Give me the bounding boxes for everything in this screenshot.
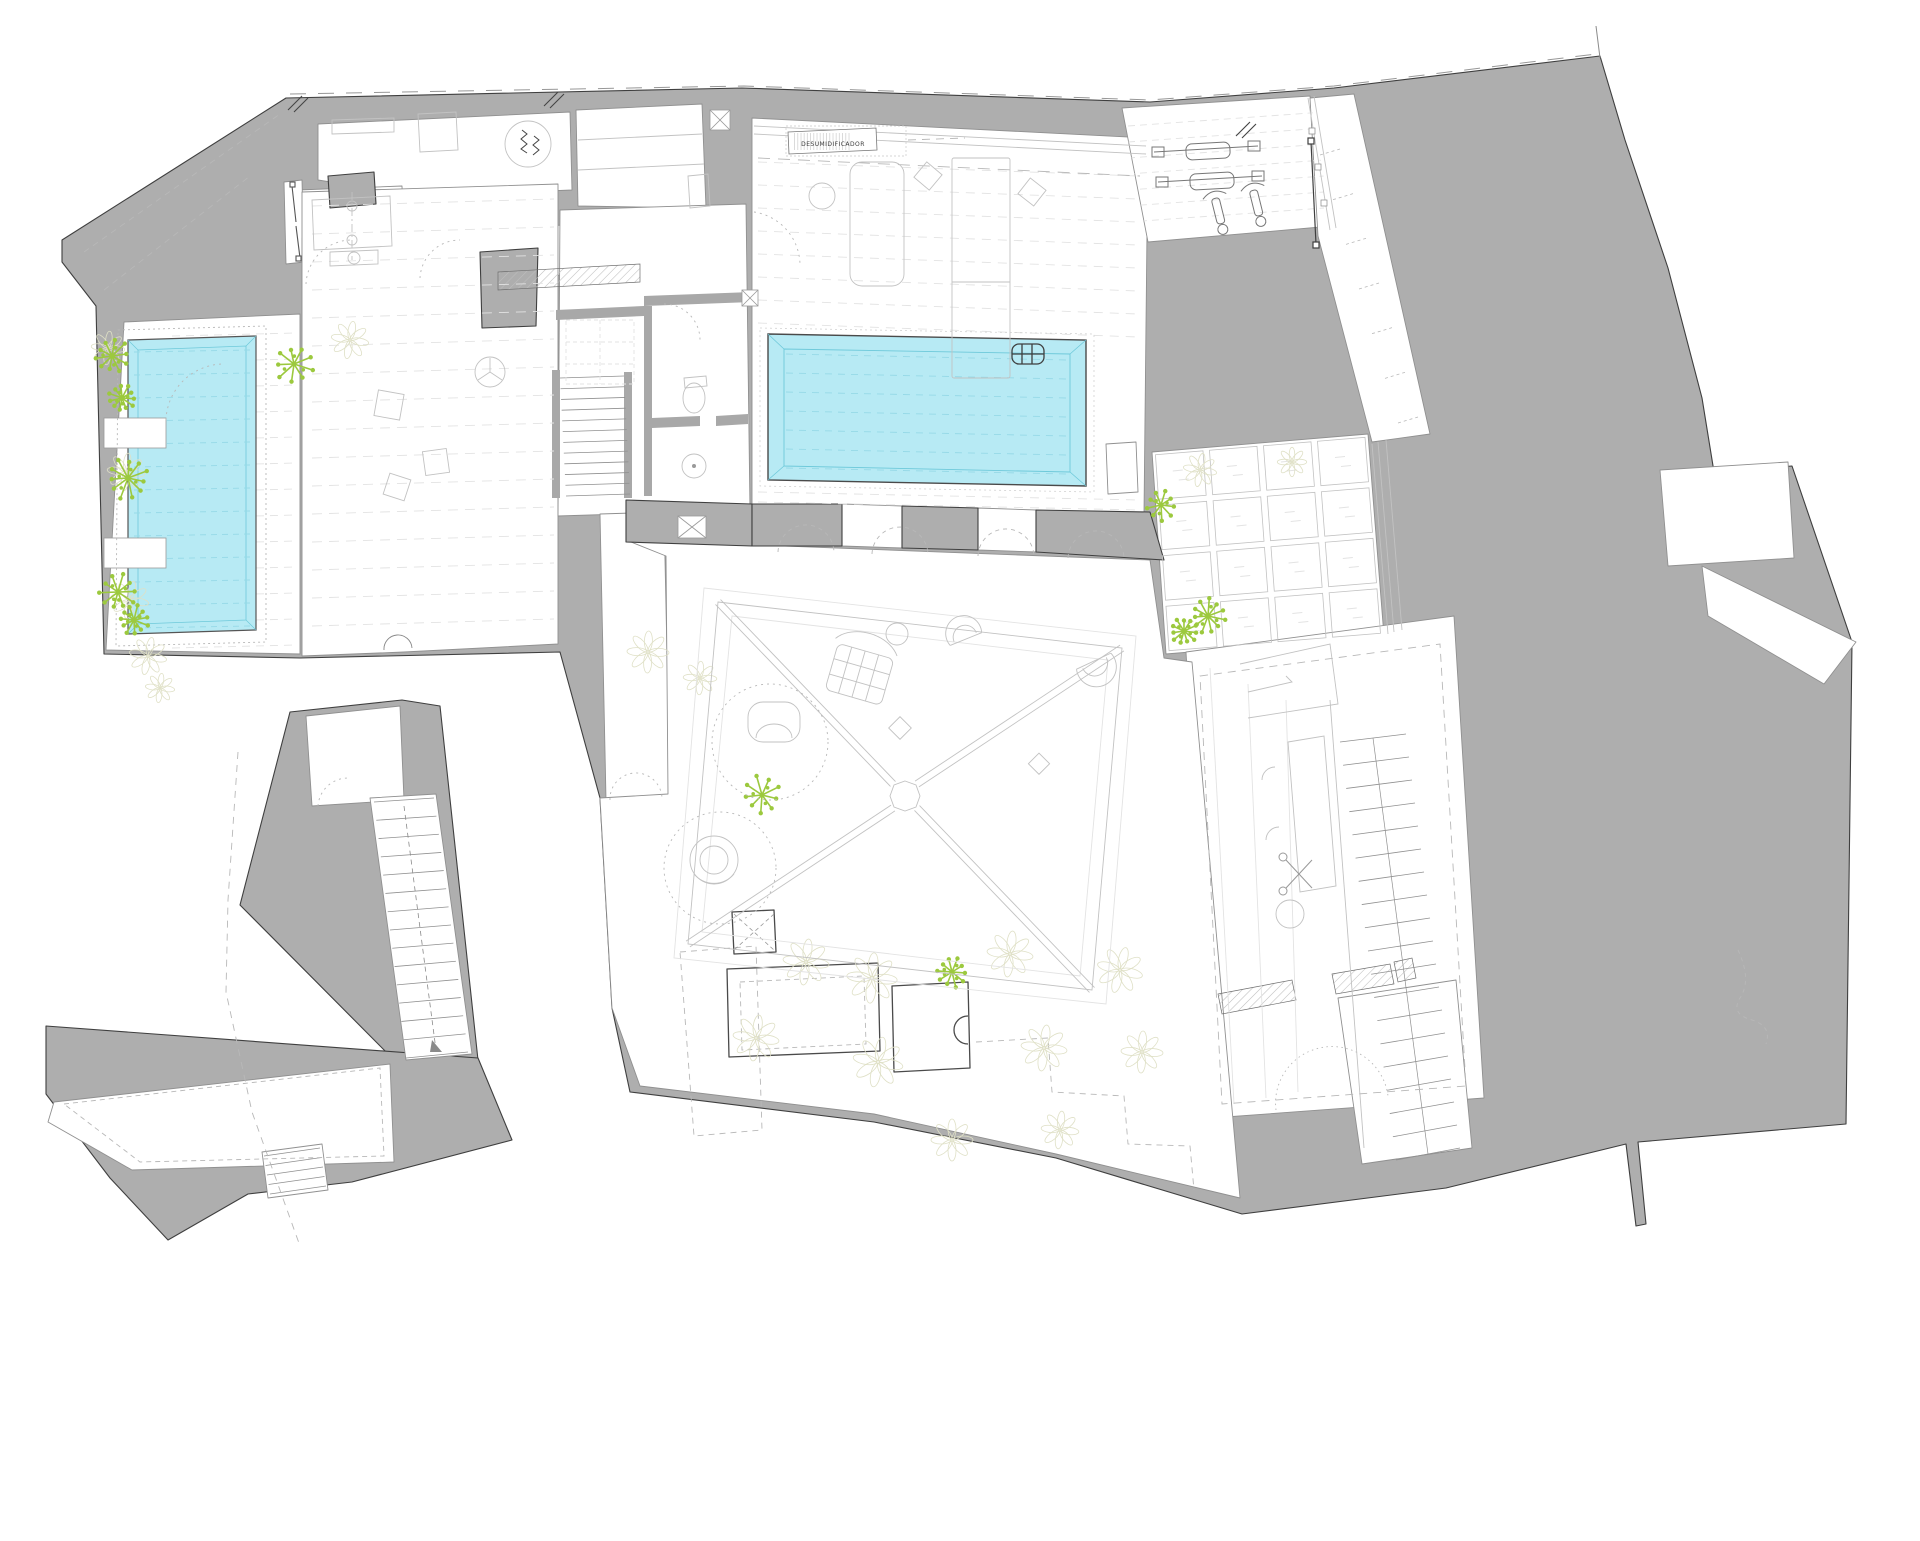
leaf-dot bbox=[94, 356, 98, 360]
leaf-dot bbox=[131, 600, 135, 604]
leaf-dot bbox=[121, 604, 125, 608]
leaf-dot bbox=[112, 597, 116, 601]
leaf-dot bbox=[145, 615, 149, 619]
leaf-dot bbox=[1145, 506, 1149, 510]
leaf-dot bbox=[963, 971, 967, 975]
leaf-dot bbox=[123, 341, 127, 345]
leaf-dot bbox=[1163, 489, 1167, 493]
leaf-dot bbox=[138, 488, 142, 492]
leaf-dot bbox=[1207, 596, 1211, 600]
leaf-dot bbox=[1215, 619, 1219, 623]
leaf-dot bbox=[1171, 624, 1175, 628]
leaf-dot bbox=[122, 610, 126, 614]
leaf-dot bbox=[146, 623, 150, 627]
trunk-dot bbox=[116, 590, 121, 595]
foliage-plant-icon bbox=[145, 673, 175, 703]
leaf-dot bbox=[113, 387, 117, 391]
deck-niche bbox=[1106, 442, 1138, 494]
leaf-dot bbox=[1188, 619, 1192, 623]
petal bbox=[145, 683, 160, 690]
pool-bridge-slab bbox=[104, 418, 166, 448]
leaf-dot bbox=[955, 977, 959, 981]
leaf-dot bbox=[132, 631, 136, 635]
leaf-dot bbox=[124, 631, 128, 635]
leaf-dot bbox=[955, 956, 959, 960]
leaf-dot bbox=[751, 792, 755, 796]
leaf-dot bbox=[117, 369, 121, 373]
leaf-dot bbox=[289, 379, 293, 383]
leaf-dot bbox=[102, 600, 106, 604]
leaf-dot bbox=[1178, 640, 1182, 644]
leaf-dot bbox=[112, 486, 116, 490]
leaf-dot bbox=[145, 469, 149, 473]
leaf-dot bbox=[130, 495, 134, 499]
leaf-dot bbox=[116, 458, 120, 462]
central-hall bbox=[558, 204, 750, 516]
leaf-dot bbox=[283, 367, 287, 371]
leaf-dot bbox=[300, 375, 304, 379]
leaf-dot bbox=[110, 477, 114, 481]
floor-plan-sheet: DESUMIDIFICADOR bbox=[0, 0, 1920, 1541]
leaf-dot bbox=[1168, 497, 1172, 501]
petal bbox=[948, 1141, 956, 1161]
neighbor-notch-1 bbox=[1660, 462, 1794, 566]
leaf-dot bbox=[1185, 639, 1189, 643]
leaf-dot bbox=[776, 785, 780, 789]
leaf-dot bbox=[103, 341, 107, 345]
leaf-dot bbox=[1169, 513, 1173, 517]
leaf-dot bbox=[1172, 504, 1176, 508]
leaf-dot bbox=[289, 348, 293, 352]
main-pool bbox=[760, 328, 1094, 492]
leaf-dot bbox=[961, 979, 965, 983]
wall-chunk bbox=[752, 504, 842, 546]
trunk-dot bbox=[292, 362, 297, 367]
leaf-dot bbox=[137, 461, 141, 465]
leaf-dot bbox=[124, 406, 128, 410]
branch bbox=[118, 591, 135, 592]
leaf-dot bbox=[754, 774, 758, 778]
leaf-dot bbox=[1154, 499, 1158, 503]
leaf-dot bbox=[1200, 630, 1204, 634]
leaf-dot bbox=[308, 355, 312, 359]
leaf-dot bbox=[132, 396, 136, 400]
leaf-dot bbox=[124, 361, 128, 365]
leaf-dot bbox=[311, 368, 315, 372]
leaf-dot bbox=[103, 581, 107, 585]
leaf-dot bbox=[1221, 608, 1225, 612]
leaf-dot bbox=[759, 811, 763, 815]
leaf-dot bbox=[292, 354, 296, 358]
leaf-dot bbox=[301, 368, 305, 372]
leaf-dot bbox=[277, 375, 281, 379]
leaf-dot bbox=[1193, 615, 1197, 619]
leaf-dot bbox=[107, 391, 111, 395]
leaf-dot bbox=[955, 964, 959, 968]
petal bbox=[931, 1136, 951, 1144]
leaf-dot bbox=[101, 353, 105, 357]
trunk-dot bbox=[132, 618, 137, 623]
trunk-dot bbox=[760, 793, 765, 798]
leaf-dot bbox=[127, 581, 131, 585]
floor-plan: DESUMIDIFICADOR bbox=[0, 0, 1920, 1541]
leaf-dot bbox=[108, 367, 112, 371]
stairwing-upper-room bbox=[306, 706, 404, 806]
petal bbox=[159, 677, 173, 690]
leaf-dot bbox=[126, 384, 130, 388]
leaf-dot bbox=[117, 360, 121, 364]
leaf-dot bbox=[112, 363, 116, 367]
leaf-dot bbox=[114, 346, 118, 350]
leaf-dot bbox=[118, 407, 122, 411]
leaf-dot bbox=[278, 351, 282, 355]
pool-bridge-slab bbox=[104, 538, 166, 568]
leaf-dot bbox=[130, 404, 134, 408]
leaf-dot bbox=[1172, 638, 1176, 642]
leaf-dot bbox=[1151, 513, 1155, 517]
leaf-dot bbox=[1223, 618, 1227, 622]
wall-chunk bbox=[1036, 510, 1164, 560]
leaf-dot bbox=[954, 985, 958, 989]
trunk-dot bbox=[1182, 629, 1187, 634]
leaf-dot bbox=[764, 802, 768, 806]
wall-chunk bbox=[902, 506, 978, 550]
leaf-dot bbox=[1160, 519, 1164, 523]
leaf-dot bbox=[945, 982, 949, 986]
leaf-dot bbox=[1165, 501, 1169, 505]
trunk-dot bbox=[126, 476, 131, 481]
leaf-dot bbox=[112, 604, 116, 608]
leaf-dot bbox=[110, 467, 114, 471]
leaf-dot bbox=[118, 496, 122, 500]
leaf-dot bbox=[938, 977, 942, 981]
trunk-dot bbox=[1206, 614, 1211, 619]
leaf-dot bbox=[111, 584, 115, 588]
leaf-dot bbox=[108, 399, 112, 403]
leaf-dot bbox=[1198, 600, 1202, 604]
trunk-dot bbox=[120, 396, 125, 401]
door-opening-2 bbox=[978, 508, 1036, 552]
branch bbox=[99, 592, 118, 593]
leaf-dot bbox=[127, 605, 131, 609]
leaf-dot bbox=[132, 589, 136, 593]
parterre-garden-room bbox=[1152, 434, 1384, 654]
leaf-dot bbox=[1175, 618, 1179, 622]
petal bbox=[141, 656, 152, 675]
leaf-dot bbox=[113, 338, 117, 342]
leaf-dot bbox=[117, 475, 121, 479]
equipment-label-text: DESUMIDIFICADOR bbox=[801, 141, 865, 148]
leaf-dot bbox=[1193, 607, 1197, 611]
leaf-dot bbox=[97, 590, 101, 594]
leaf-dot bbox=[124, 587, 128, 591]
leaf-dot bbox=[129, 391, 133, 395]
leaf-dot bbox=[110, 574, 114, 578]
leaf-dot bbox=[121, 623, 125, 627]
leaf-dot bbox=[139, 627, 143, 631]
leaf-dot bbox=[1192, 638, 1196, 642]
leaf-dot bbox=[121, 572, 125, 576]
leaf-dot bbox=[1216, 624, 1220, 628]
leaf-dot bbox=[1209, 629, 1213, 633]
leaf-dot bbox=[1154, 491, 1158, 495]
petal bbox=[160, 685, 175, 692]
leaf-dot bbox=[129, 468, 133, 472]
leaf-dot bbox=[1214, 602, 1218, 606]
leaf-dot bbox=[745, 783, 749, 787]
leaf-dot bbox=[119, 384, 123, 388]
leaf-dot bbox=[769, 806, 773, 810]
leaf-dot bbox=[1182, 618, 1186, 622]
leaf-dot bbox=[1201, 622, 1205, 626]
leaf-dot bbox=[135, 603, 139, 607]
leaf-dot bbox=[1148, 497, 1152, 501]
trunk-dot bbox=[1159, 503, 1164, 508]
leaf-dot bbox=[943, 968, 947, 972]
leaf-dot bbox=[134, 480, 138, 484]
leaf-dot bbox=[141, 479, 145, 483]
leaf-dot bbox=[124, 352, 128, 356]
leaf-dot bbox=[941, 962, 945, 966]
leaf-dot bbox=[140, 609, 144, 613]
leaf-dot bbox=[1194, 630, 1198, 634]
petal bbox=[157, 673, 164, 688]
petal bbox=[155, 688, 162, 703]
leaf-dot bbox=[127, 460, 131, 464]
leaf-dot bbox=[119, 486, 123, 490]
leaf-dot bbox=[99, 364, 103, 368]
leaf-dot bbox=[750, 803, 754, 807]
leaf-dot bbox=[119, 617, 123, 621]
leaf-dot bbox=[112, 404, 116, 408]
leaf-dot bbox=[299, 347, 303, 351]
leaf-dot bbox=[766, 786, 770, 790]
room-wardrobe bbox=[576, 104, 706, 208]
leaf-dot bbox=[276, 362, 280, 366]
leaf-dot bbox=[1171, 630, 1175, 634]
leaf-dot bbox=[98, 348, 102, 352]
leaf-dot bbox=[1194, 623, 1198, 627]
wall-chunk bbox=[328, 172, 376, 208]
site-boundary-line bbox=[1596, 26, 1600, 58]
leaf-dot bbox=[960, 964, 964, 968]
trunk-dot bbox=[110, 354, 115, 359]
entry-vestibule bbox=[284, 180, 304, 264]
leaf-dot bbox=[117, 598, 121, 602]
leaf-dot bbox=[1158, 512, 1162, 516]
leaf-dot bbox=[1209, 605, 1213, 609]
door-opening-1 bbox=[842, 504, 902, 548]
leaf-dot bbox=[767, 778, 771, 782]
